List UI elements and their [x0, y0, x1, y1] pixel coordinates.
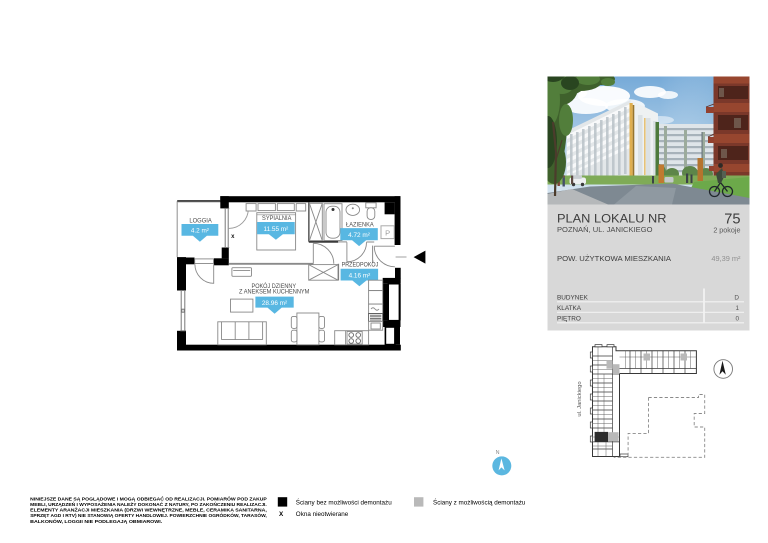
svg-text:NINIEJSZE DANE SĄ POGLĄDOWE I: NINIEJSZE DANE SĄ POGLĄDOWE I MOGĄ ODBIE…	[30, 494, 267, 502]
svg-text:Okna nieotwierane: Okna nieotwierane	[296, 511, 349, 518]
svg-text:Ściany z możliwością demontażu: Ściany z możliwością demontażu	[433, 498, 526, 507]
svg-text:x: x	[231, 234, 235, 240]
svg-text:11.55 m²: 11.55 m²	[264, 226, 289, 233]
svg-text:28.96 m²: 28.96 m²	[262, 300, 287, 307]
svg-text:POZNAŃ, UL. JANICKIEGO: POZNAŃ, UL. JANICKIEGO	[557, 225, 653, 234]
svg-text:1: 1	[735, 305, 739, 312]
svg-text:4.72 m²: 4.72 m²	[348, 232, 370, 239]
svg-text:SYPIALNIA: SYPIALNIA	[262, 215, 292, 222]
svg-text:4.16 m²: 4.16 m²	[349, 273, 371, 280]
svg-text:PIĘTRO: PIĘTRO	[557, 316, 581, 323]
svg-text:ŁAZIENKA: ŁAZIENKA	[346, 221, 375, 228]
svg-text:4.2 m²: 4.2 m²	[191, 228, 209, 235]
svg-text:P: P	[385, 228, 390, 237]
svg-text:2 pokoje: 2 pokoje	[713, 225, 740, 234]
svg-text:49,39 m²: 49,39 m²	[711, 254, 741, 263]
svg-text:PLAN LOKALU NR: PLAN LOKALU NR	[557, 213, 667, 226]
svg-text:POW. UŻYTKOWA MIESZKANIA: POW. UŻYTKOWA MIESZKANIA	[557, 254, 671, 263]
svg-text:ul. Janickiego: ul. Janickiego	[577, 381, 583, 416]
svg-text:LOGGIA: LOGGIA	[189, 217, 212, 224]
svg-text:Z ANEKSEM KUCHENNYM: Z ANEKSEM KUCHENNYM	[239, 289, 309, 296]
svg-text:X: X	[279, 511, 284, 518]
svg-text:N: N	[496, 450, 500, 456]
svg-text:D: D	[734, 295, 739, 302]
svg-text:BUDYNEK: BUDYNEK	[557, 295, 589, 302]
svg-text:KLATKA: KLATKA	[557, 305, 582, 312]
svg-text:Ściany bez możliwości demontaż: Ściany bez możliwości demontażu	[296, 498, 392, 507]
svg-text:0: 0	[735, 316, 739, 323]
svg-text:PRZEDPOKÓJ: PRZEDPOKÓJ	[342, 262, 379, 269]
svg-text:ELEMENTY ARANŻACJI MIESZKANIA: ELEMENTY ARANŻACJI MIESZKANIA (DRZWI WEW…	[30, 507, 267, 514]
